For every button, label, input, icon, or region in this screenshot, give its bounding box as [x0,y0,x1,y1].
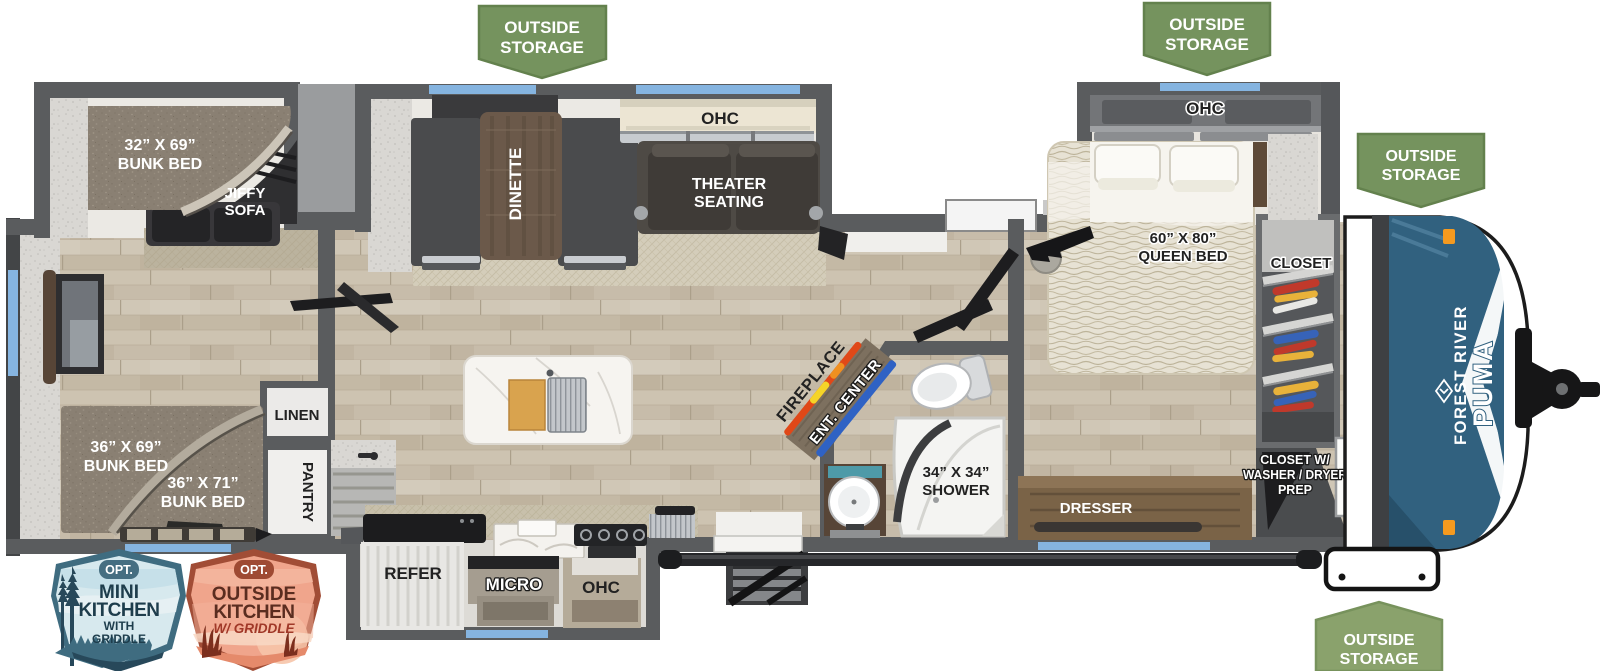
svg-text:BUNK BED: BUNK BED [118,156,202,173]
svg-text:SHOWER: SHOWER [922,482,990,499]
svg-text:SOFA: SOFA [225,202,266,219]
svg-text:OUTSIDE: OUTSIDE [504,18,580,37]
svg-text:DRESSER: DRESSER [1060,500,1133,517]
svg-text:PANTRY: PANTRY [299,462,316,522]
svg-text:OHC: OHC [701,109,739,128]
svg-text:36” X 71”: 36” X 71” [167,475,238,492]
svg-text:OHC: OHC [1186,99,1224,118]
svg-text:36” X 69”: 36” X 69” [90,439,161,456]
svg-text:PUMA: PUMA [1468,339,1498,427]
svg-text:WASHER / DRYER: WASHER / DRYER [1243,468,1347,482]
svg-text:STORAGE: STORAGE [1165,35,1249,54]
svg-text:W/ GRIDDLE: W/ GRIDDLE [214,621,296,636]
svg-text:OHC: OHC [582,578,620,597]
svg-text:LINEN: LINEN [275,407,320,424]
svg-text:60” X 80”: 60” X 80” [1150,230,1217,247]
svg-text:PREP: PREP [1278,483,1312,497]
svg-text:CLOSET W/: CLOSET W/ [1260,453,1330,467]
svg-text:MICRO: MICRO [486,575,543,594]
svg-text:THEATER: THEATER [692,176,767,193]
svg-text:DINETTE: DINETTE [506,148,525,221]
svg-text:BUNK BED: BUNK BED [84,458,168,475]
svg-text:GRIDDLE: GRIDDLE [92,632,146,646]
svg-text:STORAGE: STORAGE [500,38,584,57]
svg-text:JIFFY: JIFFY [225,185,266,202]
svg-text:OUTSIDE: OUTSIDE [1385,148,1456,165]
svg-text:KITCHEN: KITCHEN [214,602,295,623]
svg-text:STORAGE: STORAGE [1340,651,1419,668]
svg-text:QUEEN BED: QUEEN BED [1138,248,1227,265]
svg-text:OPT.: OPT. [105,563,133,577]
svg-text:32” X 69”: 32” X 69” [124,137,195,154]
svg-text:OUTSIDE: OUTSIDE [1169,15,1245,34]
svg-text:34” X 34”: 34” X 34” [923,464,990,481]
svg-text:WITH: WITH [104,619,135,633]
svg-text:SEATING: SEATING [694,194,764,211]
svg-text:OUTSIDE: OUTSIDE [1343,632,1414,649]
svg-text:KITCHEN: KITCHEN [79,600,160,621]
svg-text:CLOSET: CLOSET [1271,255,1332,272]
svg-text:OPT.: OPT. [240,563,268,577]
svg-text:BUNK BED: BUNK BED [161,494,245,511]
svg-text:STORAGE: STORAGE [1382,167,1461,184]
svg-text:REFER: REFER [384,564,442,583]
